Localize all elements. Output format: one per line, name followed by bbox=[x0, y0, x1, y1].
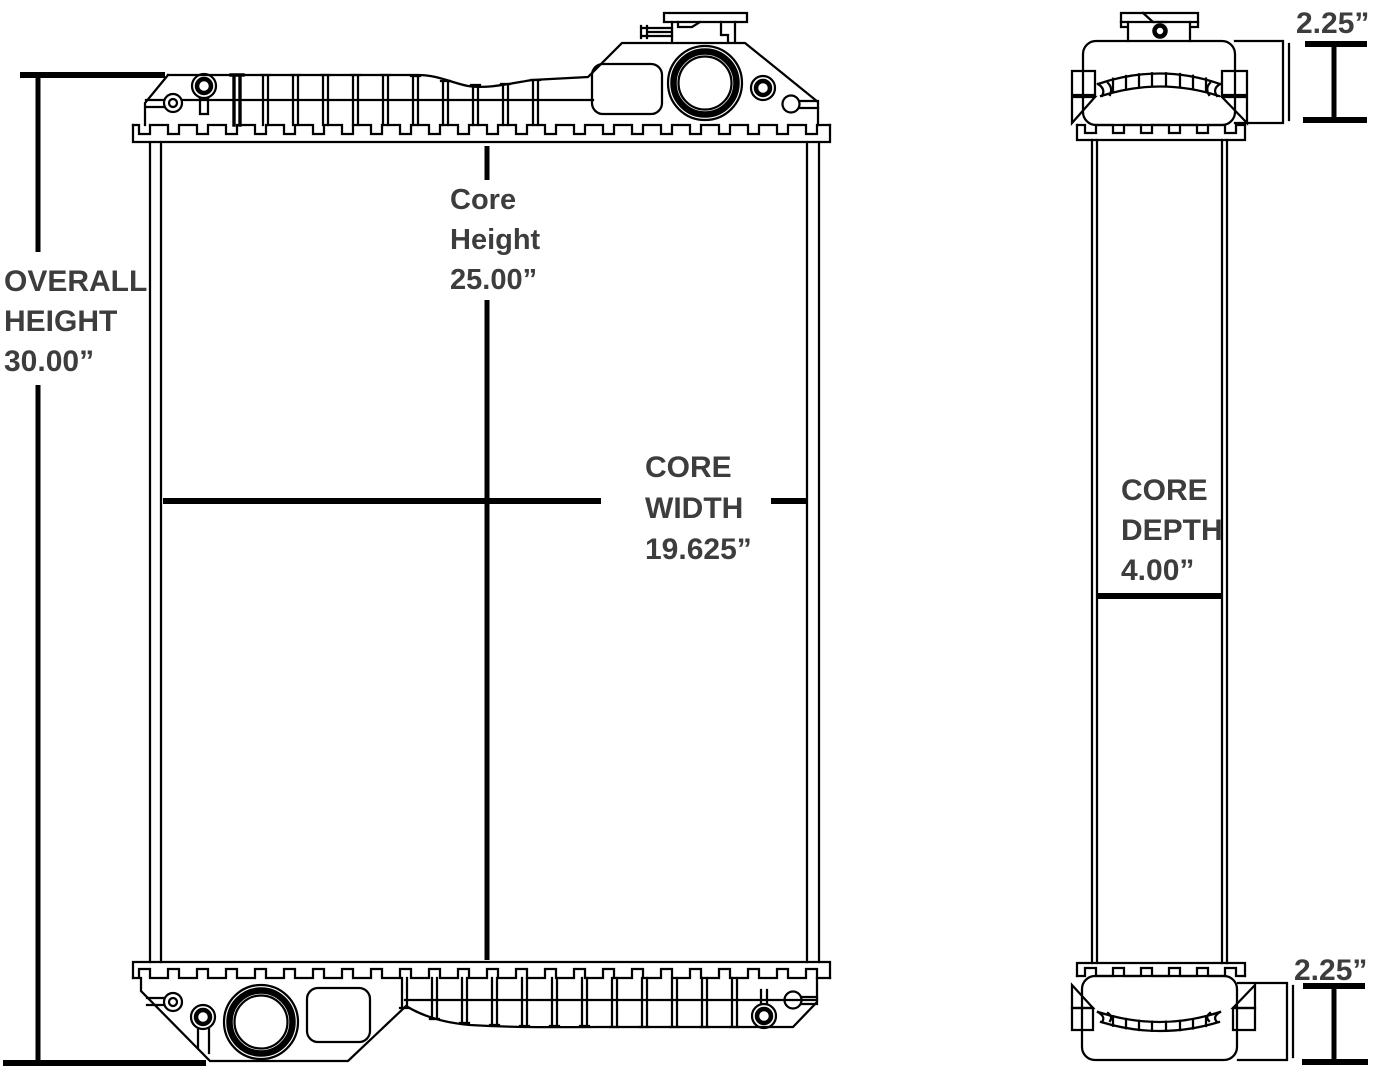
rib bbox=[471, 85, 480, 125]
top-right-port-lines bbox=[800, 101, 818, 108]
core-height-label: 25.00” bbox=[450, 264, 537, 296]
inlet-port-ring bbox=[674, 52, 737, 115]
bottom-left-port-outer bbox=[164, 993, 182, 1011]
rib bbox=[580, 978, 589, 1026]
core-width-label: WIDTH bbox=[645, 492, 743, 525]
top-right-port bbox=[783, 96, 800, 113]
top-flange-teeth bbox=[133, 125, 830, 134]
side-filler-cap-plate bbox=[1121, 13, 1198, 22]
side-core-right-edge bbox=[1222, 140, 1227, 963]
side-core bbox=[1092, 140, 1227, 963]
rib bbox=[520, 978, 529, 1026]
rib bbox=[501, 84, 510, 125]
side-bottom-flange-teeth bbox=[1077, 968, 1245, 976]
radiator-dimension-drawing: OVERALL HEIGHT 30.00” Core Height 25.00”… bbox=[0, 0, 1375, 1081]
top-outlet-label: 2.25” bbox=[1296, 7, 1369, 40]
side-arch-band bbox=[1098, 1012, 1220, 1031]
rib bbox=[610, 978, 619, 1027]
rib bbox=[730, 978, 739, 1027]
core-height-label: Core bbox=[450, 184, 516, 216]
rib bbox=[670, 978, 679, 1027]
side-arch-ticks bbox=[1113, 1016, 1206, 1031]
drawing-canvas: OVERALL HEIGHT 30.00” Core Height 25.00”… bbox=[0, 0, 1375, 1081]
core-width-label: 19.625” bbox=[645, 533, 752, 566]
overflow-tube bbox=[641, 26, 672, 38]
bottom-outlet-label: 2.25” bbox=[1294, 954, 1367, 987]
top-right-fitting-ring bbox=[756, 81, 770, 95]
bottom-left-fitting-ring bbox=[196, 1010, 210, 1024]
side-arch-end-wedges bbox=[1098, 83, 1220, 96]
dim-bottom-outlet: 2.25” bbox=[1294, 954, 1368, 1062]
core-depth-label: DEPTH bbox=[1121, 514, 1223, 547]
core-width-label: CORE bbox=[645, 451, 732, 484]
overall-height-label: OVERALL bbox=[4, 265, 147, 298]
core-left-edge bbox=[150, 143, 161, 962]
filler-cap bbox=[641, 13, 747, 42]
dim-overall-height: OVERALL HEIGHT 30.00” bbox=[3, 75, 206, 1063]
side-arch-band bbox=[1098, 74, 1220, 97]
side-arch-ticks bbox=[1113, 73, 1206, 91]
rib bbox=[700, 978, 709, 1027]
side-top-flange-body bbox=[1077, 125, 1245, 140]
side-bottom-flange-body bbox=[1077, 963, 1245, 976]
rib bbox=[441, 81, 450, 125]
core-right-edge bbox=[807, 143, 819, 962]
overall-height-label: 30.00” bbox=[4, 345, 94, 378]
inlet-port-inner bbox=[679, 57, 732, 110]
outlet-port-inner bbox=[235, 996, 288, 1049]
bottom-right-fitting-ring bbox=[757, 1009, 771, 1023]
outlet-port-ring bbox=[230, 991, 293, 1054]
side-filler-cap-hole bbox=[1155, 26, 1166, 37]
dim-core-height: Core Height 25.00” bbox=[450, 146, 541, 960]
top-left-port-outer bbox=[164, 94, 182, 112]
core-height-label: Height bbox=[450, 224, 541, 256]
top-tank-waterline bbox=[146, 100, 593, 107]
side-top-tank-body bbox=[1083, 41, 1235, 125]
rib bbox=[490, 978, 499, 1025]
filler-cap-plate bbox=[664, 13, 747, 22]
bottom-flange-teeth bbox=[133, 969, 830, 978]
top-tank-pocket bbox=[592, 64, 662, 114]
top-left-port-inner bbox=[169, 99, 177, 107]
dim-top-outlet: 2.25” bbox=[1296, 7, 1369, 120]
core-depth-label: CORE bbox=[1121, 474, 1208, 507]
top-left-fitting-ring bbox=[197, 79, 211, 93]
front-bottom-tank bbox=[133, 962, 830, 1061]
dim-core-depth: CORE DEPTH 4.00” bbox=[1097, 474, 1223, 596]
bottom-tank-pocket bbox=[307, 988, 370, 1042]
core-depth-label: 4.00” bbox=[1121, 554, 1194, 587]
rib bbox=[640, 978, 649, 1027]
front-top-tank bbox=[133, 13, 830, 142]
side-top-flange-teeth bbox=[1077, 125, 1245, 133]
side-bottom-tank-body bbox=[1082, 976, 1237, 1060]
side-bottom-tank bbox=[1072, 963, 1293, 1060]
side-filler-cap-step bbox=[1143, 13, 1166, 22]
filler-cap-body bbox=[672, 22, 735, 42]
rib bbox=[531, 80, 540, 125]
rib bbox=[400, 978, 409, 1008]
bottom-left-port-lines bbox=[147, 998, 164, 1005]
side-top-pipe bbox=[1235, 41, 1289, 123]
rib bbox=[550, 978, 559, 1026]
bottom-left-port-inner bbox=[169, 998, 177, 1006]
side-core-left-edge bbox=[1092, 140, 1097, 963]
side-top-tank bbox=[1072, 13, 1289, 140]
overall-height-label: HEIGHT bbox=[4, 305, 117, 338]
rib bbox=[430, 978, 439, 1019]
